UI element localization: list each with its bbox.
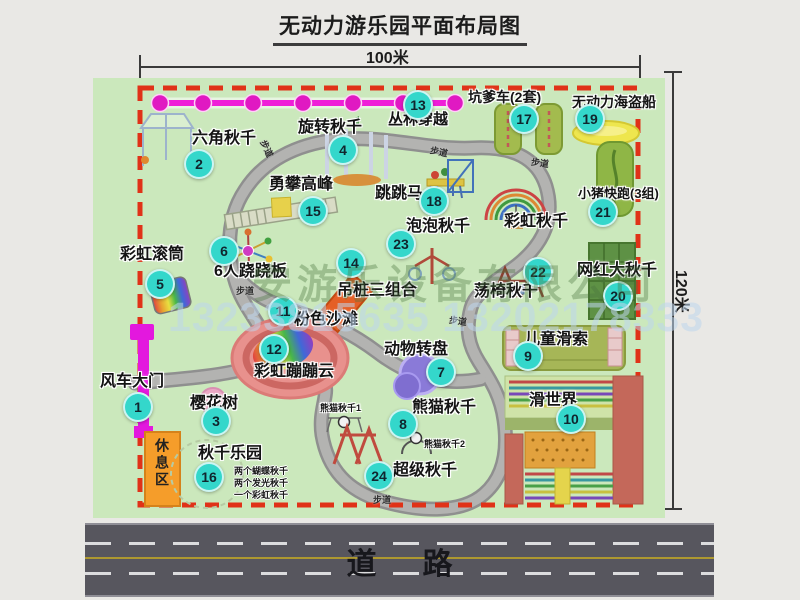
zipline-shape	[503, 326, 625, 370]
rest-area-label: 休息区	[152, 438, 172, 489]
park-map-canvas	[85, 38, 713, 518]
big-swing-shape	[589, 243, 635, 319]
piggy-run-track	[597, 142, 633, 216]
slide-world-shape	[505, 376, 643, 504]
road-label: 道路	[85, 539, 714, 583]
park-layout-page: 无动力游乐园平面布局图 100米 120米	[0, 0, 800, 600]
bounce-cloud-shape	[232, 318, 348, 398]
pirate-ship-shape	[573, 121, 639, 145]
